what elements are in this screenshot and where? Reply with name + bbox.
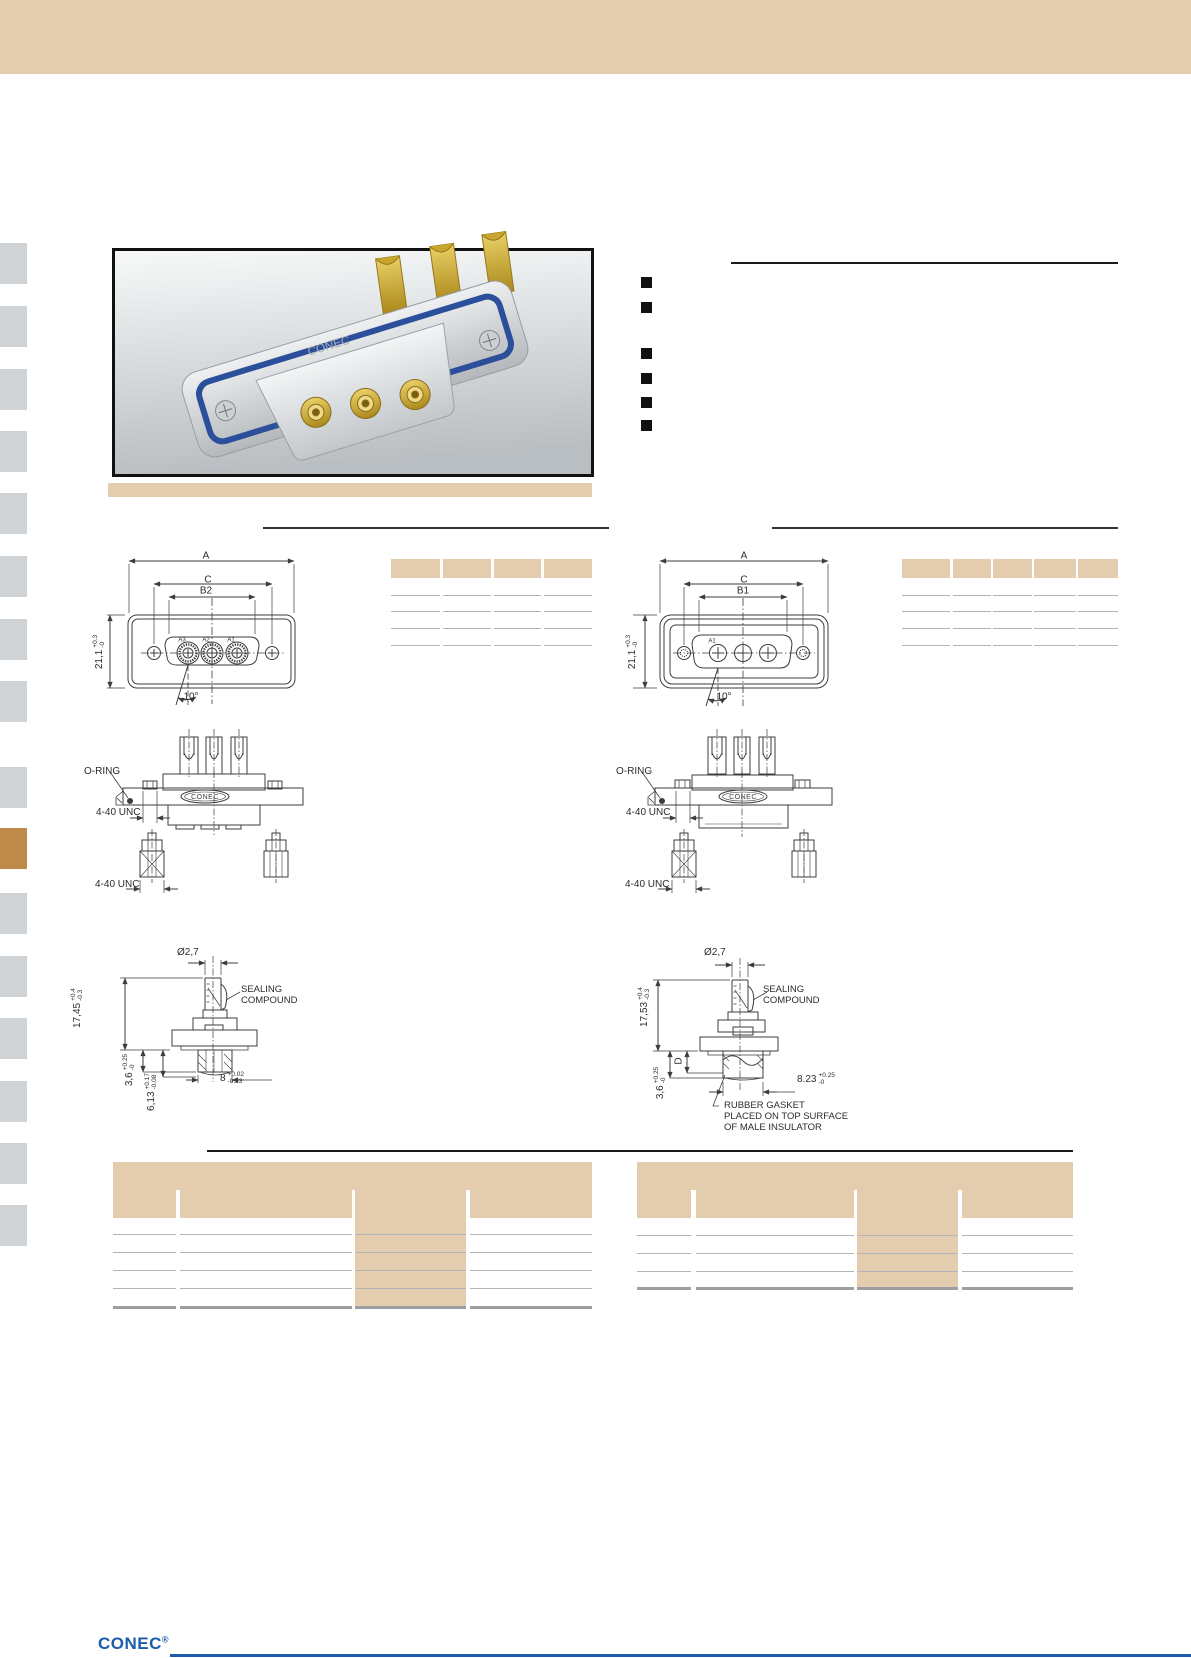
row-line — [180, 1288, 352, 1289]
row-line — [902, 611, 950, 612]
row-line — [637, 1253, 691, 1254]
row-line — [180, 1234, 352, 1235]
row-line — [494, 645, 541, 646]
sealing-compound-right: SEALING COMPOUND — [763, 985, 819, 1007]
row-line — [470, 1234, 592, 1235]
row-line — [544, 628, 592, 629]
sidebar-tab — [0, 306, 27, 347]
row-line — [696, 1253, 854, 1254]
row-line — [355, 1270, 466, 1271]
feature-bullet — [641, 277, 652, 288]
dim-height-right: 21,1 +0.3-0 — [626, 635, 640, 669]
table-bottom-border — [696, 1287, 854, 1290]
feature-bullet — [641, 302, 652, 313]
row-line — [962, 1271, 1073, 1272]
row-line — [470, 1288, 592, 1289]
header-cell — [1034, 559, 1076, 578]
row-line — [1078, 611, 1118, 612]
sidebar-tab — [0, 556, 27, 597]
dim-a-left: A — [203, 550, 210, 562]
row-line — [391, 595, 440, 596]
dim-c-right: C — [740, 574, 747, 586]
feature-bullet — [641, 373, 652, 384]
header-cell — [857, 1190, 958, 1218]
dim-b2-left: B2 — [200, 585, 212, 597]
row-line — [355, 1234, 466, 1235]
row-line — [1078, 645, 1118, 646]
table-bottom-border — [857, 1287, 958, 1290]
row-line — [962, 1235, 1073, 1236]
contact-label-a2: A2 — [202, 638, 209, 645]
feature-bullet — [641, 348, 652, 359]
header-cell — [544, 559, 592, 578]
sidebar-tab — [0, 893, 27, 934]
header-cell — [1078, 559, 1118, 578]
rubber-gasket-note: RUBBER GASKET PLACED ON TOP SURFACE OF M… — [724, 1101, 848, 1134]
row-line — [544, 645, 592, 646]
sidebar-tab — [0, 619, 27, 660]
table-bottom-border — [113, 1306, 176, 1309]
dim-angle-right: 10° — [716, 691, 731, 703]
row-line — [391, 628, 440, 629]
header-cell — [470, 1190, 592, 1218]
table-bottom-border — [962, 1287, 1073, 1290]
datasheet-page: CONEC — [0, 0, 1191, 1658]
row-line — [544, 595, 592, 596]
feature-bullet — [641, 397, 652, 408]
dim-height-left: 21,1 +0.3-0 — [93, 635, 107, 669]
row-line — [637, 1271, 691, 1272]
sealing-compound-left: SEALING COMPOUND — [241, 985, 297, 1007]
sidebar-tab — [0, 767, 27, 808]
parts-section-rule — [207, 1150, 1073, 1152]
highlighted-column — [355, 1218, 466, 1309]
dim-c-left: C — [204, 574, 211, 586]
row-line — [902, 645, 950, 646]
header-cell — [494, 559, 541, 578]
title-rule — [731, 262, 1118, 264]
header-cell — [391, 559, 440, 578]
row-line — [494, 595, 541, 596]
row-line — [443, 628, 491, 629]
row-line — [696, 1271, 854, 1272]
screw-thread-right: 4-40 UNC — [625, 879, 669, 891]
photo-caption-bar — [108, 483, 592, 497]
row-line — [494, 628, 541, 629]
sidebar-tab — [0, 956, 27, 997]
contact-label-a1-right: A1 — [708, 639, 715, 646]
header-cell — [113, 1190, 176, 1218]
header-cell — [993, 559, 1032, 578]
dim-angle-left: 10° — [183, 691, 198, 703]
row-line — [1078, 628, 1118, 629]
header-cell — [637, 1190, 691, 1218]
table-bottom-border — [180, 1306, 352, 1309]
product-photo: CONEC — [112, 248, 594, 477]
feature-bullet — [641, 420, 652, 431]
table-bottom-border — [470, 1306, 592, 1309]
header-cell — [953, 559, 991, 578]
row-line — [544, 611, 592, 612]
row-line — [857, 1235, 958, 1236]
row-line — [902, 595, 950, 596]
dim-b1-right: B1 — [737, 585, 749, 597]
header-merged-row — [113, 1162, 592, 1190]
flange-thread-right: 4-40 UNC — [626, 807, 670, 819]
sidebar-tab — [0, 1018, 27, 1059]
contact-label-a1: A1 — [227, 638, 234, 645]
dim-d1-right: 3,6 +0.25-0 — [654, 1067, 668, 1099]
row-line — [1034, 611, 1076, 612]
header-cell — [902, 559, 950, 578]
sidebar-tab — [0, 431, 27, 472]
row-line — [113, 1234, 176, 1235]
row-line — [857, 1271, 958, 1272]
front-view-right-drawing — [595, 538, 845, 714]
dia-label-left: Ø2,7 — [177, 947, 199, 959]
row-line — [953, 645, 991, 646]
dim-d2-left: 6,13 +0.17-0.08 — [145, 1073, 159, 1111]
row-line — [962, 1253, 1073, 1254]
row-line — [1034, 645, 1076, 646]
row-line — [993, 595, 1032, 596]
brand-oval-right: CONEC — [729, 794, 757, 801]
footer-rule — [170, 1654, 1191, 1657]
dim-width-left: 8 +0.02-0.23 — [220, 1072, 244, 1086]
sidebar-tab — [0, 493, 27, 534]
dia-label-right: Ø2,7 — [704, 947, 726, 959]
section-rule-left — [263, 527, 609, 529]
row-line — [113, 1270, 176, 1271]
row-line — [696, 1235, 854, 1236]
sidebar-tab — [0, 369, 27, 410]
table-bottom-border — [637, 1287, 691, 1290]
row-line — [391, 611, 440, 612]
row-line — [470, 1270, 592, 1271]
oring-label-right: O-RING — [616, 766, 652, 778]
sidebar-tab — [0, 1143, 27, 1184]
row-line — [637, 1235, 691, 1236]
header-merged-row — [637, 1162, 1073, 1190]
header-cell — [443, 559, 491, 578]
row-line — [355, 1252, 466, 1253]
row-line — [993, 645, 1032, 646]
sidebar-tab-active — [0, 828, 27, 869]
row-line — [355, 1288, 466, 1289]
row-line — [1078, 595, 1118, 596]
sidebar-tab — [0, 243, 27, 284]
row-line — [857, 1253, 958, 1254]
contact-label-a3: A3 — [178, 638, 185, 645]
row-line — [180, 1252, 352, 1253]
row-line — [1034, 628, 1076, 629]
row-line — [494, 611, 541, 612]
row-line — [953, 595, 991, 596]
row-line — [902, 628, 950, 629]
dim-a-right: A — [741, 550, 748, 562]
dim-d-label-right: D — [673, 1057, 685, 1064]
header-cell — [696, 1190, 854, 1218]
row-line — [953, 628, 991, 629]
oring-label-left: O-RING — [84, 766, 120, 778]
row-line — [113, 1252, 176, 1253]
sidebar-tab — [0, 1081, 27, 1122]
front-view-left-drawing — [95, 538, 325, 714]
row-line — [443, 595, 491, 596]
row-line — [1034, 595, 1076, 596]
row-line — [470, 1252, 592, 1253]
brand-oval-left: CONEC — [191, 794, 219, 801]
top-band — [0, 0, 1191, 74]
sidebar-tab — [0, 1205, 27, 1246]
flange-thread-left: 4-40 UNC — [96, 807, 140, 819]
dim-width-right: 8.23 +0.25-0 — [797, 1073, 835, 1087]
row-line — [953, 611, 991, 612]
row-line — [391, 645, 440, 646]
row-line — [443, 645, 491, 646]
dim-d1-left: 3,6 +0.25-0 — [123, 1054, 137, 1086]
header-cell — [355, 1190, 466, 1218]
row-line — [113, 1288, 176, 1289]
row-line — [993, 628, 1032, 629]
table-bottom-border — [355, 1306, 466, 1309]
sidebar-tab — [0, 681, 27, 722]
row-line — [180, 1270, 352, 1271]
section-rule-right — [772, 527, 1118, 529]
row-line — [993, 611, 1032, 612]
screw-thread-left: 4-40 UNC — [95, 879, 139, 891]
conec-logo: CONEC® — [98, 1634, 169, 1654]
product-photo-render: CONEC — [115, 251, 591, 474]
dim-total-right: 17,53 +0.4-0.3 — [638, 987, 652, 1027]
header-cell — [962, 1190, 1073, 1218]
header-cell — [180, 1190, 352, 1218]
dim-total-left: 17,45 +0.4-0.3 — [71, 988, 85, 1028]
row-line — [443, 611, 491, 612]
